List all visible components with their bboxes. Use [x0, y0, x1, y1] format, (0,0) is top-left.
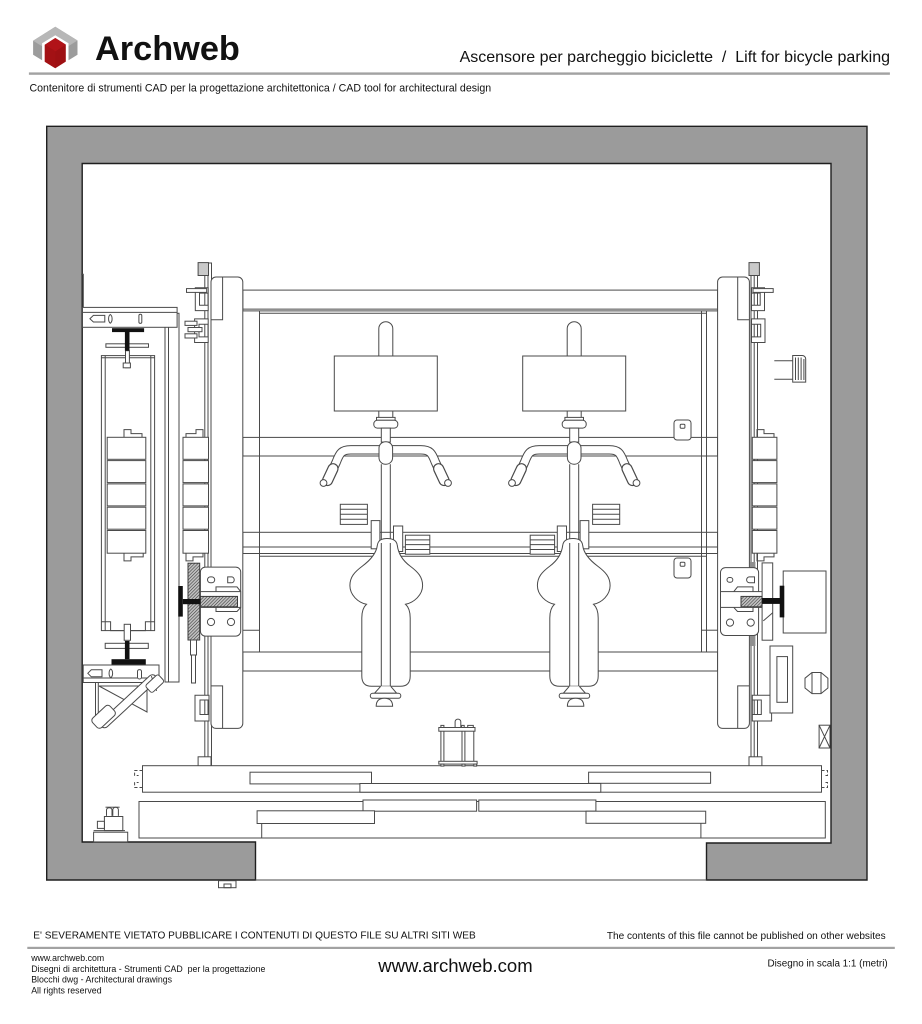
svg-text:Archweb: Archweb [95, 30, 240, 68]
svg-text:E' SEVERAMENTE VIETATO PUBBLIC: E' SEVERAMENTE VIETATO PUBBLICARE I CONT… [33, 931, 476, 942]
svg-text:www.archweb.com: www.archweb.com [377, 955, 532, 976]
svg-text:Disegno in scala 1:1 (metri): Disegno in scala 1:1 (metri) [767, 959, 887, 970]
svg-text:Ascensore per parcheggio bicic: Ascensore per parcheggio biciclette / Li… [460, 49, 890, 66]
svg-text:All rights reserved: All rights reserved [31, 985, 102, 995]
svg-text:The contents of this file cann: The contents of this file cannot be publ… [607, 931, 886, 942]
svg-text:www.archweb.com: www.archweb.com [30, 953, 104, 963]
svg-text:Disegni di architettura - Stru: Disegni di architettura - Strumenti CAD … [31, 964, 265, 974]
svg-text:Contenitore di strumenti CAD p: Contenitore di strumenti CAD per la prog… [30, 83, 492, 95]
svg-text:Blocchi dwg - Architectural dr: Blocchi dwg - Architectural drawings [31, 975, 172, 985]
